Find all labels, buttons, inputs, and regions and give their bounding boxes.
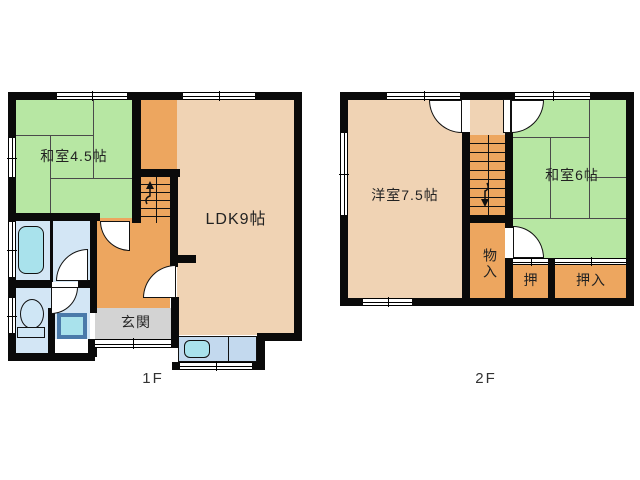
window-icon [8, 138, 16, 177]
stairs-up-arrow-icon [141, 180, 159, 206]
wall [462, 215, 513, 223]
wall [8, 280, 52, 288]
window-icon [387, 92, 460, 100]
floorplan-image: 和室4.5帖 LDK9帖 玄関 1F [0, 0, 640, 480]
tatami-line [16, 135, 94, 136]
sliding-door-icon [555, 258, 626, 265]
wall [8, 353, 95, 361]
toilet-icon [20, 299, 44, 329]
washbasin-icon [57, 313, 87, 339]
window-icon [363, 298, 412, 306]
sliding-door-icon [513, 258, 548, 265]
window-icon [515, 92, 590, 100]
window-icon [8, 298, 16, 333]
wall [505, 258, 513, 298]
stairs-down-arrow-icon [476, 181, 494, 209]
floor-label-1f: 1F [133, 371, 173, 387]
wall [50, 218, 53, 282]
wall [78, 280, 97, 288]
wall [505, 132, 513, 228]
room-washitsu6-label: 和室6帖 [534, 168, 610, 183]
tatami-line [513, 218, 626, 219]
floor-label-2f: 2F [466, 371, 506, 387]
wall [90, 213, 97, 313]
oshiire-label: 押入 [569, 273, 613, 288]
wall [8, 213, 100, 221]
kitchen-counter-divider [228, 336, 229, 362]
monoire-label: 物入 [479, 242, 497, 286]
room-washitsu45-label: 和室4.5帖 [20, 149, 128, 164]
toilet-base-icon [17, 327, 45, 338]
tatami-line [513, 137, 590, 138]
wall [178, 255, 196, 263]
tatami-line [50, 178, 132, 179]
window-icon [57, 92, 127, 100]
oshi-label: 押 [520, 273, 542, 288]
bathtub-icon [18, 226, 44, 274]
wall [48, 308, 55, 353]
wall [171, 297, 179, 348]
room-yoshitsu75-label: 洋室7.5帖 [360, 188, 450, 203]
wall [626, 92, 634, 306]
wall [132, 92, 141, 223]
door-leaf-icon [503, 99, 511, 133]
window-icon [180, 362, 252, 370]
window-icon [8, 222, 16, 277]
tatami-line [93, 100, 94, 178]
kitchen-sink-icon [184, 340, 210, 358]
hall-upper-strip-fill [141, 98, 177, 172]
wall [8, 92, 302, 100]
wall [294, 92, 302, 341]
stairs-1f [139, 177, 172, 223]
wall [170, 169, 178, 267]
room-ldk-label: LDK9帖 [193, 212, 279, 229]
tatami-line [589, 100, 590, 218]
wall [548, 258, 555, 298]
stairs-2f [470, 135, 505, 215]
stair-landing-fill [470, 98, 505, 135]
window-icon [340, 133, 348, 215]
window-icon [183, 92, 255, 100]
entrance-door-icon [95, 339, 171, 348]
genkan-label: 玄関 [108, 315, 164, 330]
